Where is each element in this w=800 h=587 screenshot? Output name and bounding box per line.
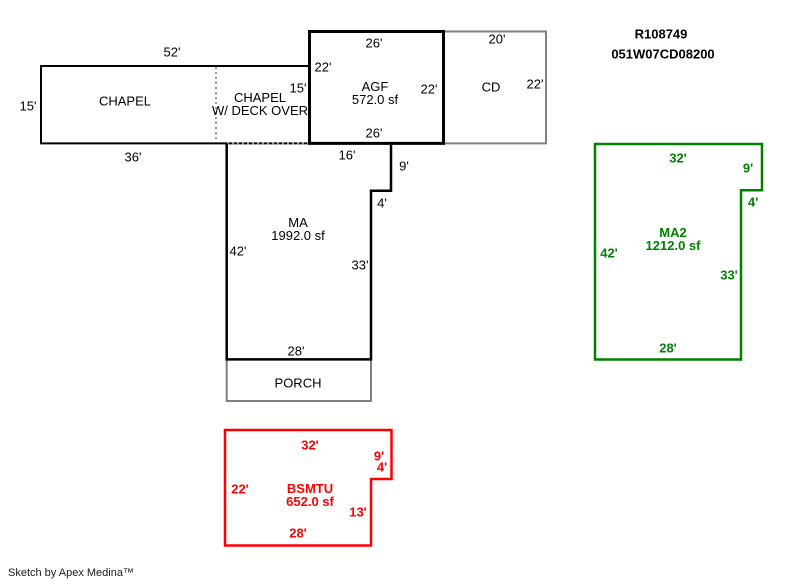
- cd-dim-top: 20': [489, 33, 506, 46]
- bsmtu-dim-left: 22': [231, 483, 249, 496]
- sketch-credit-label: Sketch by Apex Medina™: [8, 567, 134, 579]
- ma-name-label: MA 1992.0 sf: [271, 216, 325, 242]
- chapel-dim-top: 52': [164, 46, 181, 59]
- agf-area: 572.0 sf: [352, 93, 398, 106]
- ma2-dim-step: 4': [748, 196, 758, 209]
- chapel-deck-name-line2: W/ DECK OVER: [212, 104, 308, 117]
- ma-dim-step: 4': [377, 197, 387, 210]
- chapel-deck-dim-right: 15': [290, 82, 307, 95]
- floorplan-drawing: [0, 0, 800, 587]
- bsmtu-dim-right-lower: 13': [349, 506, 367, 519]
- ma2-dim-right-upper: 9': [743, 162, 753, 175]
- chapel-name-label: CHAPEL: [99, 95, 151, 108]
- chapel-dim-left: 15': [20, 100, 37, 113]
- ma2-name-label: MA2 1212.0 sf: [646, 226, 701, 252]
- porch-name-label: PORCH: [275, 377, 322, 390]
- cd-name-label: CD: [482, 81, 501, 94]
- ma-dim-right-lower: 33': [352, 259, 369, 272]
- account-number-label: 051W07CD08200: [611, 48, 714, 61]
- ma-dim-top: 16': [339, 149, 356, 162]
- agf-dim-right: 22': [421, 83, 438, 96]
- ma2-dim-left: 42': [600, 247, 618, 260]
- ma-dim-right-upper: 9': [399, 160, 409, 173]
- chapel-dim-bottom: 36': [125, 151, 142, 164]
- ma2-dim-right-lower: 33': [720, 269, 738, 282]
- bsmtu-area: 652.0 sf: [286, 495, 334, 508]
- bsmtu-dim-step: 4': [377, 461, 387, 474]
- ma-area: 1992.0 sf: [271, 229, 325, 242]
- bsmtu-dim-bottom: 28': [289, 527, 307, 540]
- bsmtu-dim-top: 32': [301, 439, 319, 452]
- agf-dim-bottom: 26': [366, 127, 383, 140]
- bsmtu-name-label: BSMTU 652.0 sf: [286, 482, 334, 508]
- ma-dim-bottom: 28': [288, 345, 305, 358]
- ma2-area: 1212.0 sf: [646, 239, 701, 252]
- ma-outline: [227, 143, 391, 359]
- agf-name-label: AGF 572.0 sf: [352, 80, 398, 106]
- ma2-dim-top: 32': [669, 152, 687, 165]
- parcel-id-label: R108749: [635, 28, 688, 41]
- sketch-canvas: R108749 051W07CD08200 52' 15' CHAPEL 36'…: [0, 0, 800, 587]
- agf-dim-left: 22': [315, 61, 332, 74]
- ma2-dim-bottom: 28': [659, 342, 677, 355]
- ma-dim-left: 42': [230, 245, 247, 258]
- agf-dim-top: 26': [366, 37, 383, 50]
- cd-dim-right: 22': [527, 78, 544, 91]
